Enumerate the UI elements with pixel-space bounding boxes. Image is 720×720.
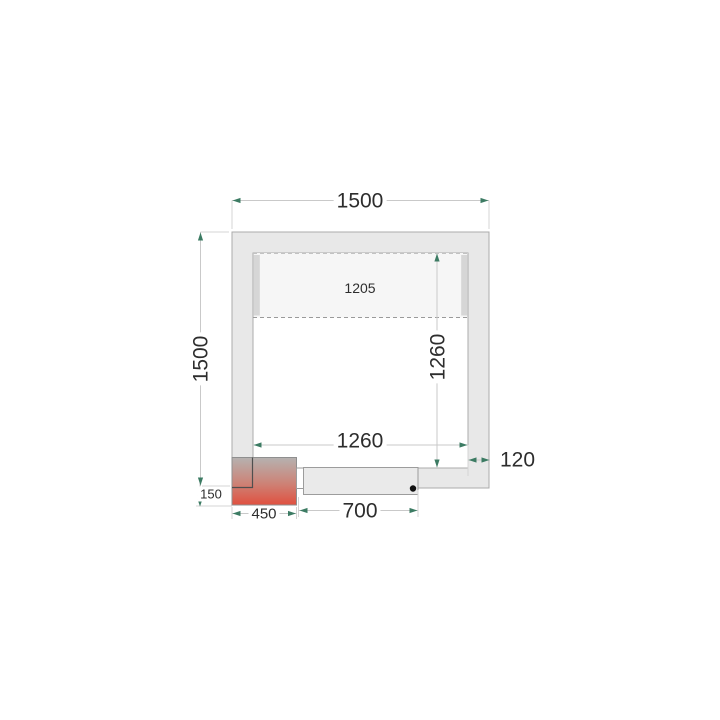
cold-room-plan-drawing: 1500 1500 1260 1260 1205 120 700 450 150 (0, 0, 720, 720)
label-unit-offset: 150 (197, 487, 225, 502)
label-door-opening: 700 (339, 500, 380, 523)
arrow-door-opening-left (300, 508, 308, 513)
arrow-overall-height-top (198, 233, 203, 241)
arrow-unit-width-right (288, 511, 296, 516)
arrow-interior-width-left (254, 442, 262, 447)
arrow-interior-height-bottom (434, 460, 439, 468)
label-overall-height: 1500 (190, 333, 213, 386)
evaporator-panel-left-cap (254, 255, 260, 316)
label-overall-width: 1500 (334, 190, 387, 213)
condensing-unit (232, 458, 297, 506)
arrow-interior-width-right (460, 442, 468, 447)
label-interior-width: 1260 (334, 430, 387, 453)
arrow-door-opening-right (410, 508, 418, 513)
evaporator-panel-right-cap (461, 255, 467, 316)
arrow-unit-width-left (233, 511, 241, 516)
label-wall-thickness: 120 (497, 449, 538, 472)
arrow-overall-height-bottom (198, 478, 203, 486)
arrow-overall-width-left (233, 198, 241, 203)
label-unit-width: 450 (248, 506, 279, 523)
label-interior-height: 1260 (427, 331, 450, 384)
door-frame-notch (297, 468, 304, 489)
door-pivot-dot-icon (410, 485, 416, 491)
door-leaf (304, 468, 419, 495)
arrow-overall-width-right (481, 198, 489, 203)
label-panel-length: 1205 (341, 280, 378, 296)
plan-graphics (0, 0, 720, 720)
